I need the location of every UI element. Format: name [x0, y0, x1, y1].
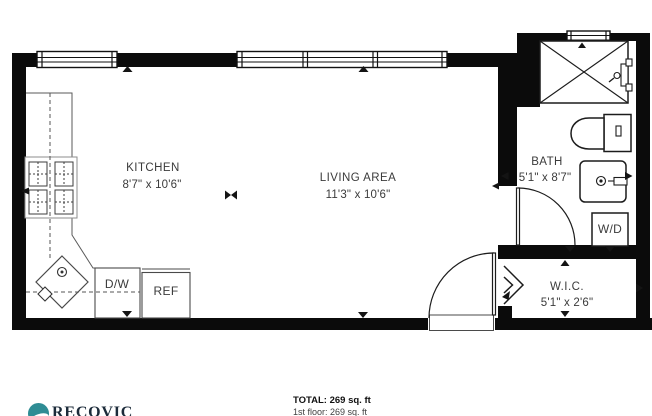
stove-icon	[25, 157, 77, 218]
dishwasher-box	[95, 268, 140, 318]
area-summary: TOTAL: 269 sq. ft 1st floor: 269 sq. ft	[293, 395, 371, 416]
top-wall-segment	[117, 53, 237, 67]
bath-left-wall-block	[517, 33, 540, 107]
living-bath-wall	[498, 62, 517, 186]
brand-logo-swoosh	[29, 411, 49, 416]
bath-top-wall-segment	[610, 33, 650, 41]
living-area-label: LIVING AREA	[320, 172, 397, 184]
brand-name: RECOVIC	[52, 404, 133, 416]
wic-wall-stub	[498, 306, 512, 330]
first-floor-area-text: 1st floor: 269 sq. ft	[293, 407, 371, 416]
window-icon	[237, 52, 447, 68]
bathroom-sink-icon	[580, 161, 627, 202]
total-area-text: TOTAL: 269 sq. ft	[293, 395, 371, 407]
toilet-icon	[571, 115, 631, 152]
window-icon	[37, 52, 117, 68]
wic-door-chevrons	[502, 266, 523, 304]
bath-label: BATH	[531, 156, 563, 168]
shower-icon	[540, 41, 632, 103]
washer-dryer-label: W/D	[598, 222, 622, 236]
bottom-wall-segment	[495, 318, 652, 330]
kitchen-label: KITCHEN	[126, 162, 180, 174]
entry-door	[429, 253, 496, 331]
floorplan-page: KITCHEN 8'7" x 10'6" LIVING AREA 11'3" x…	[0, 0, 652, 416]
bottom-wall-segment	[12, 318, 428, 330]
wic-label: W.I.C.	[550, 281, 584, 293]
floorplan-svg	[0, 0, 652, 416]
wic-dimensions: 5'1" x 2'6"	[541, 297, 593, 309]
ceiling-fixture-icon	[225, 191, 237, 200]
bath-door	[517, 188, 576, 245]
refrigerator-label: REF	[154, 284, 179, 298]
bath-dimensions: 5'1" x 8'7"	[519, 172, 571, 184]
kitchen-dimensions: 8'7" x 10'6"	[122, 179, 181, 191]
dishwasher-label: D/W	[105, 277, 129, 291]
living-area-dimensions: 11'3" x 10'6"	[326, 189, 391, 201]
